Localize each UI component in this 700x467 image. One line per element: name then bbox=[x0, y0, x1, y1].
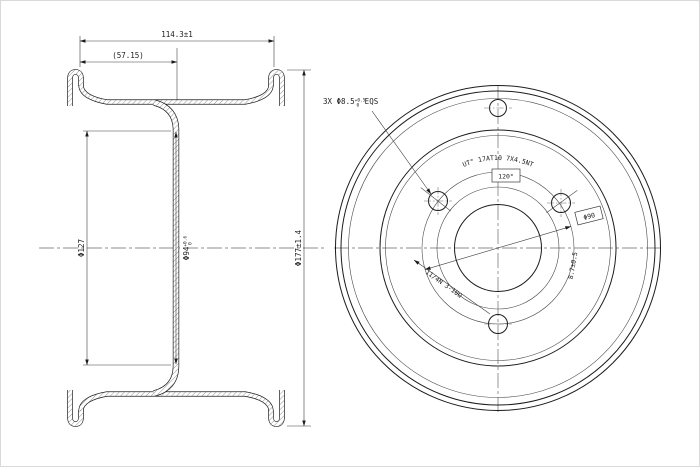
rim-profile-bottom bbox=[70, 390, 282, 424]
dim-outer-diameter-label: Φ177±1.4 bbox=[294, 229, 303, 266]
dim-flange-diameter-label: Φ127 bbox=[77, 239, 86, 257]
bolt-hole-callout: 3X Φ8.5+0.50 EQS bbox=[323, 97, 431, 194]
radial-dimension-label: 8.7±0.5 bbox=[567, 251, 580, 279]
front-view: 3X Φ8.5+0.50 EQS UT° 17AT10 7X4.5NT 120°… bbox=[323, 85, 664, 412]
bolt-hole-callout-label: 3X Φ8.5+0.50 EQS bbox=[323, 97, 379, 109]
angle-label-group: 120° bbox=[492, 169, 520, 182]
wheel-rim-drawing: 114.3±1 (57.15) Φ127 Φ94+0.60 Φ177±1.4 bbox=[1, 1, 700, 467]
section-dimensions: 114.3±1 (57.15) Φ127 Φ94+0.60 Φ177±1.4 bbox=[77, 30, 311, 426]
bolt-hole-leader-line bbox=[372, 111, 431, 194]
dim-width-label: 114.3±1 bbox=[161, 30, 193, 39]
holes bbox=[424, 100, 575, 334]
radial-line-upper-left bbox=[421, 188, 451, 211]
angle-label: 120° bbox=[498, 173, 514, 181]
section-view: 114.3±1 (57.15) Φ127 Φ94+0.60 Φ177±1.4 bbox=[39, 30, 327, 426]
rim-profile-top bbox=[70, 72, 282, 106]
dim-half-width-label: (57.15) bbox=[112, 51, 144, 60]
bolt-circle-label-group: Φ90 bbox=[575, 206, 603, 225]
valve-note-label: 11/4N 3-10Ω bbox=[424, 268, 464, 300]
engineering-drawing-page: 114.3±1 (57.15) Φ127 Φ94+0.60 Φ177±1.4 bbox=[0, 0, 700, 467]
